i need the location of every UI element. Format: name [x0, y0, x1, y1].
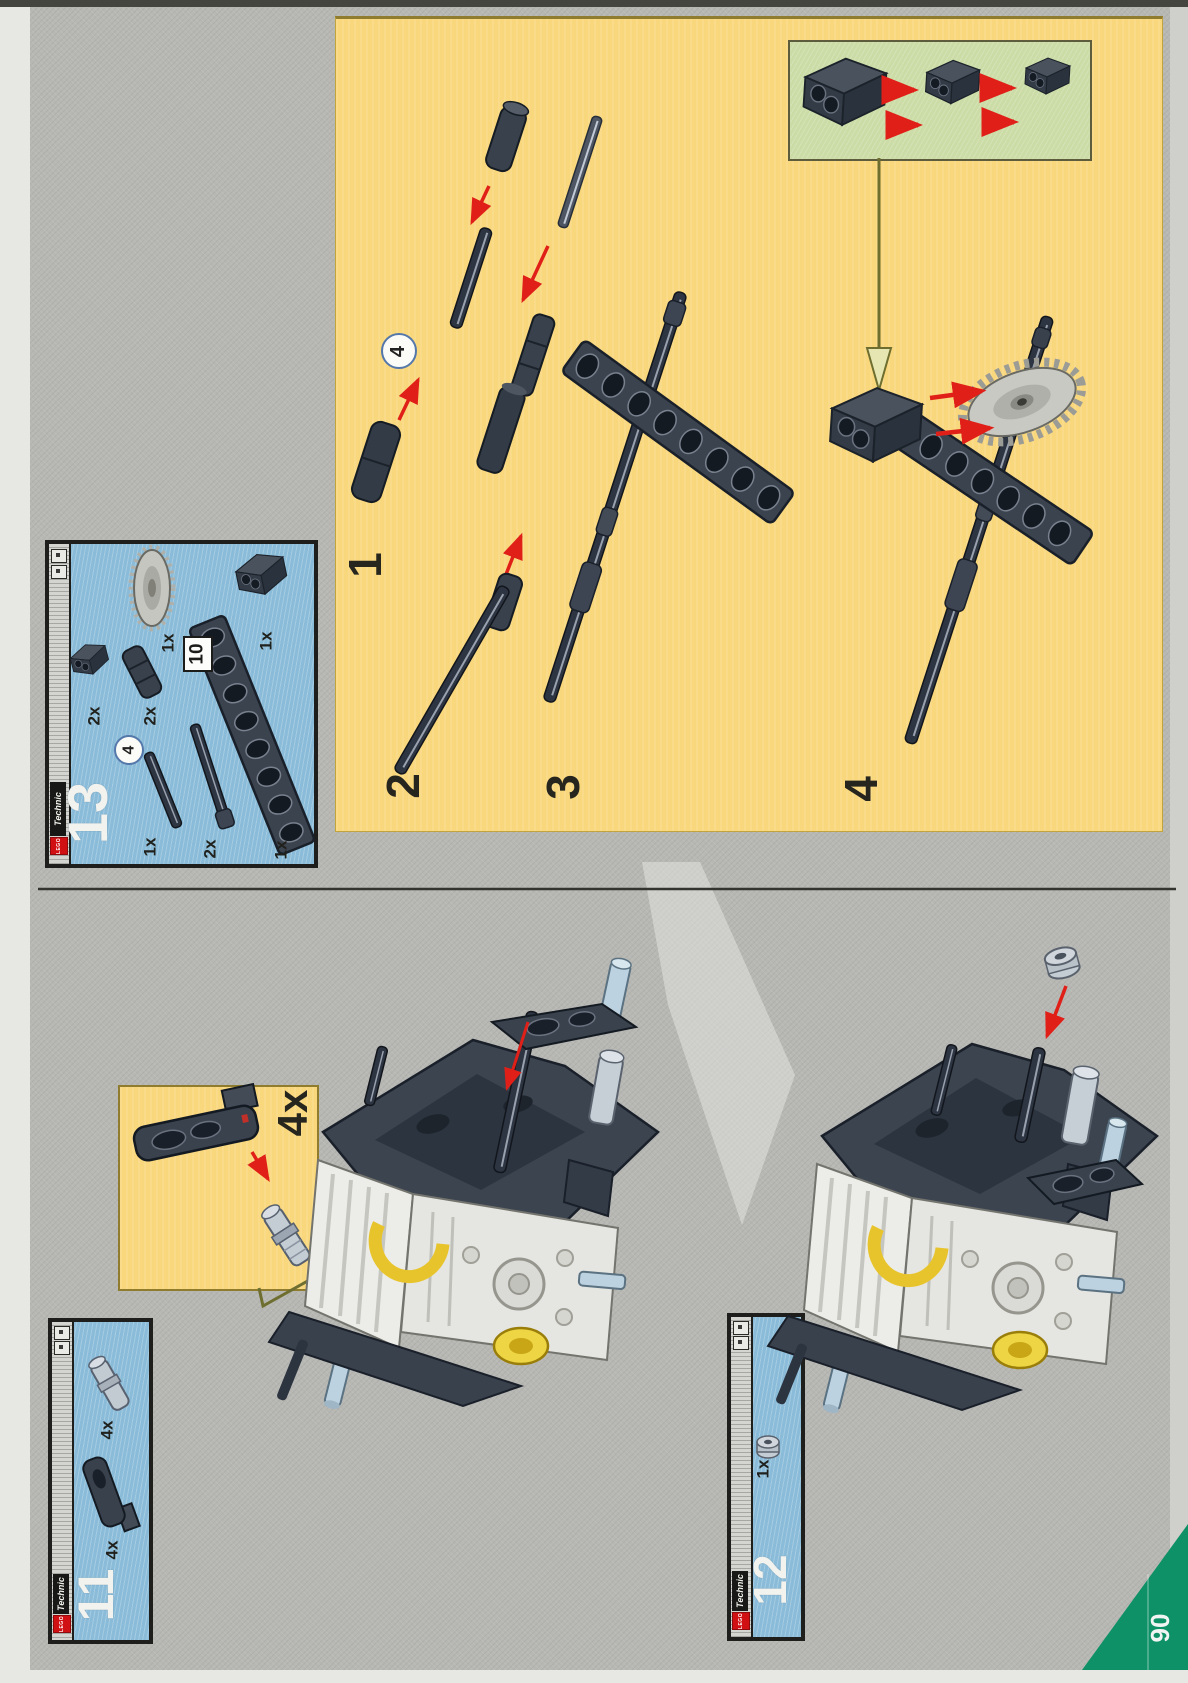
technic-label: Technic: [53, 1574, 69, 1614]
step-2-number: 2: [380, 773, 426, 799]
axle-joiner-count: 2x: [142, 707, 159, 726]
page-number: 90: [1147, 1614, 1173, 1643]
axle-count: 1x: [142, 838, 159, 857]
axle-length-badge: 4: [381, 333, 417, 369]
stop-axle-count: 2x: [202, 840, 219, 859]
parts-box-12-number: 12: [747, 1554, 793, 1605]
strip-icon: [51, 565, 67, 579]
step-1-number: 1: [342, 552, 388, 578]
crown-gear-count: 1x: [160, 634, 177, 653]
strip-icon: [733, 1321, 749, 1335]
page-top-edge: [0, 0, 1188, 7]
parts-box-11-number: 11: [71, 1569, 121, 1622]
crank-arm-count: 4x: [104, 1541, 121, 1560]
axle-length-badge-box13: 4: [114, 735, 144, 765]
half-bushing-count: 1x: [755, 1460, 772, 1479]
parts-box-13-number: 13: [60, 782, 116, 844]
beam-length-badge: 10: [183, 636, 213, 672]
strip-icon: [54, 1326, 70, 1340]
step-4-number: 4: [838, 776, 884, 802]
brick-detail-callout: [788, 40, 1092, 161]
page-right-margin: [1170, 7, 1188, 1683]
callout-4x-count: 4x: [272, 1090, 314, 1137]
lego-logo: LEGO: [732, 1612, 750, 1630]
step-3-number: 3: [540, 774, 586, 800]
pin-brick-count: 2x: [86, 707, 103, 726]
beam-count: 1x: [273, 841, 290, 860]
strip-icon: [51, 549, 67, 563]
instruction-page: Technic LEGO Technic LEGO Technic LEGO: [0, 0, 1188, 1683]
connector-peg-count: 4x: [99, 1421, 116, 1440]
page-bottom-margin: [0, 1670, 1188, 1683]
strip-icon: [733, 1336, 749, 1350]
pin-brick-2x2-count: 1x: [258, 632, 275, 651]
strip-icon: [54, 1341, 70, 1355]
page-left-margin: [0, 7, 30, 1683]
